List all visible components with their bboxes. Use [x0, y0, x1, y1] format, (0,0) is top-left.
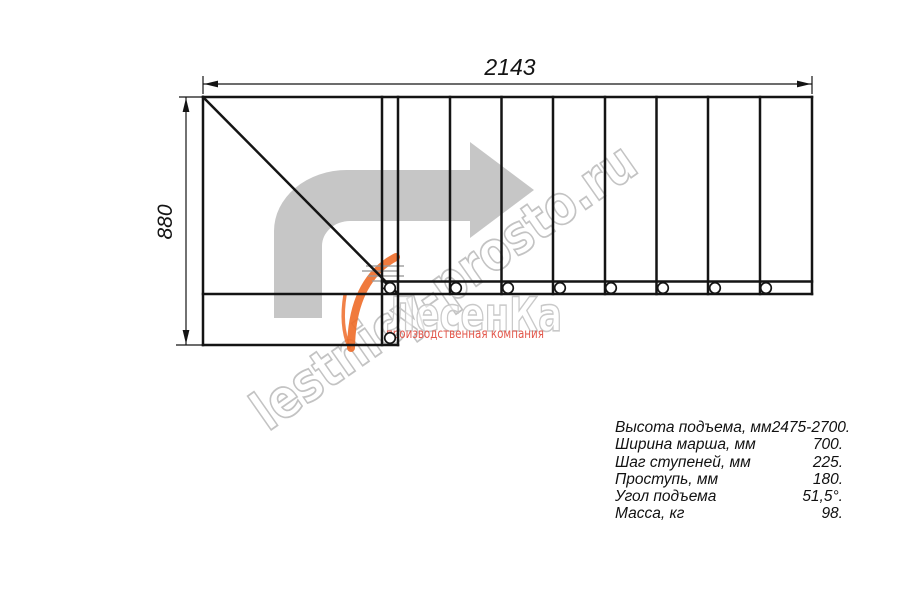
spec-value: 700.: [813, 436, 843, 453]
spec-label: Угол подъема: [615, 488, 716, 505]
spec-row: Масса, кг 98.: [615, 505, 843, 522]
spec-row: Шаг ступеней, мм 225.: [615, 454, 843, 471]
spec-label: Высота подъема, мм: [615, 419, 772, 436]
width-dimension-label: 2143: [483, 54, 535, 80]
logo-tagline-text: производственная компания: [386, 327, 544, 342]
spec-label: Ширина марша, мм: [615, 436, 756, 453]
dimension-width: 2143: [203, 54, 812, 94]
dim-arrow-right: [797, 81, 811, 88]
spec-row: Ширина марша, мм 700.: [615, 436, 843, 453]
spec-label: Масса, кг: [615, 505, 684, 522]
spec-row: Проступь, мм 180.: [615, 471, 843, 488]
dim-arrow-bottom: [183, 330, 190, 344]
dim-arrow-left: [204, 81, 218, 88]
spec-row: Высота подъема, мм 2475-2700.: [615, 419, 843, 436]
spec-value: 180.: [813, 471, 843, 488]
dimension-height: 880: [154, 97, 203, 345]
spec-value: 51,5°.: [802, 488, 843, 505]
spec-value: 2475-2700.: [772, 419, 850, 436]
dim-arrow-top: [183, 98, 190, 112]
spec-value: 225.: [813, 454, 843, 471]
spec-value: 98.: [821, 505, 843, 522]
spec-table: Высота подъема, мм 2475-2700. Ширина мар…: [615, 419, 843, 523]
spec-row: Угол подъема 51,5°.: [615, 488, 843, 505]
spec-label: Проступь, мм: [615, 471, 718, 488]
height-dimension-label: 880: [154, 204, 177, 239]
drawing-canvas: lestnicy-prosto.ru ЛесенКа производствен…: [0, 0, 900, 600]
spec-label: Шаг ступеней, мм: [615, 454, 751, 471]
